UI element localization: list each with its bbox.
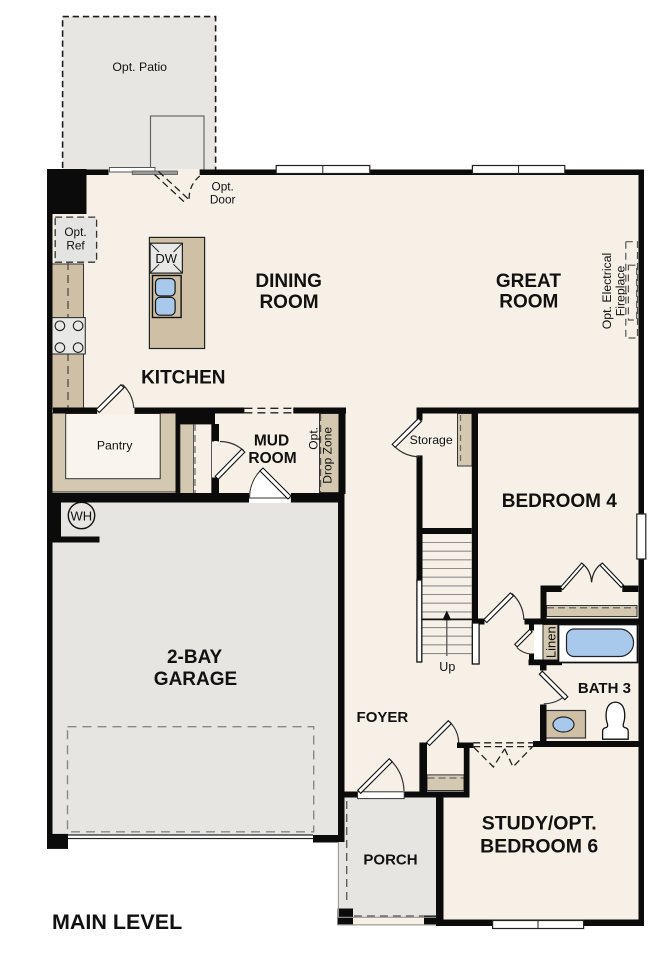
svg-text:Opt. Electrical: Opt. Electrical xyxy=(600,253,614,330)
svg-text:2-BAY: 2-BAY xyxy=(167,647,223,668)
svg-text:BEDROOM 4: BEDROOM 4 xyxy=(502,491,618,512)
svg-text:Opt.: Opt. xyxy=(212,180,234,194)
svg-text:Linen: Linen xyxy=(543,626,558,658)
svg-text:Opt. Patio: Opt. Patio xyxy=(112,60,167,74)
svg-text:BEDROOM 6: BEDROOM 6 xyxy=(480,836,598,858)
svg-text:Up: Up xyxy=(439,660,455,674)
svg-text:GREAT: GREAT xyxy=(496,271,561,292)
svg-text:DW: DW xyxy=(155,251,177,266)
svg-text:KITCHEN: KITCHEN xyxy=(141,368,225,389)
svg-text:Storage: Storage xyxy=(410,433,453,447)
svg-text:BATH 3: BATH 3 xyxy=(578,680,631,697)
svg-text:Fireplace: Fireplace xyxy=(613,266,627,317)
svg-text:Pantry: Pantry xyxy=(97,439,133,453)
svg-text:WH: WH xyxy=(70,509,92,524)
svg-text:Drop Zone: Drop Zone xyxy=(321,427,335,484)
svg-text:ROOM: ROOM xyxy=(248,450,296,467)
svg-text:PORCH: PORCH xyxy=(363,852,417,869)
svg-text:ROOM: ROOM xyxy=(259,292,318,313)
svg-text:GARAGE: GARAGE xyxy=(154,669,237,690)
svg-text:ROOM: ROOM xyxy=(499,292,558,313)
svg-text:MUD: MUD xyxy=(254,433,289,450)
svg-text:Opt.: Opt. xyxy=(307,427,321,450)
svg-text:FOYER: FOYER xyxy=(357,709,409,726)
svg-text:Opt.: Opt. xyxy=(64,225,86,239)
svg-text:STUDY/OPT.: STUDY/OPT. xyxy=(482,813,597,835)
svg-text:Door: Door xyxy=(210,193,236,207)
svg-text:MAIN LEVEL: MAIN LEVEL xyxy=(52,910,182,934)
svg-text:DINING: DINING xyxy=(255,271,322,292)
svg-text:Ref: Ref xyxy=(66,239,85,253)
